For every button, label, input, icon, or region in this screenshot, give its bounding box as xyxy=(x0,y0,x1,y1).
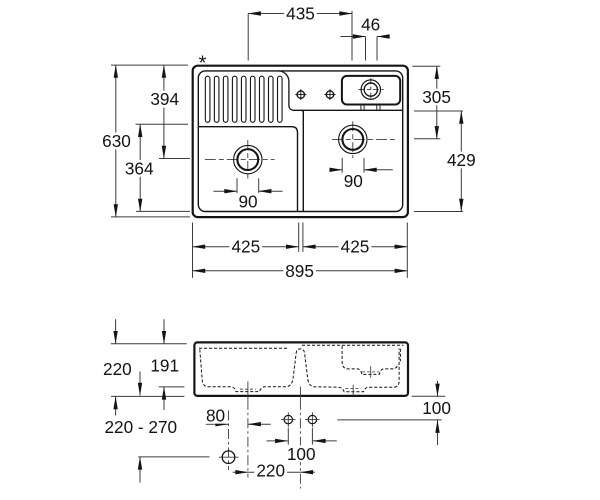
svg-text:630: 630 xyxy=(102,131,131,151)
svg-text:305: 305 xyxy=(422,87,451,107)
svg-text:90: 90 xyxy=(344,171,363,191)
svg-text:220: 220 xyxy=(256,461,285,481)
svg-text:895: 895 xyxy=(285,261,314,281)
svg-text:100: 100 xyxy=(287,444,316,464)
svg-text:46: 46 xyxy=(361,15,380,35)
svg-text:425: 425 xyxy=(231,237,260,257)
svg-text:425: 425 xyxy=(341,237,370,257)
svg-text:80: 80 xyxy=(206,405,225,425)
svg-text:100: 100 xyxy=(422,398,451,418)
svg-text:429: 429 xyxy=(447,150,476,170)
svg-text:394: 394 xyxy=(150,89,179,109)
svg-text:435: 435 xyxy=(286,4,315,24)
svg-text:220: 220 xyxy=(103,359,132,379)
svg-text:90: 90 xyxy=(238,191,257,211)
svg-text:220 - 270: 220 - 270 xyxy=(104,417,177,437)
svg-text:*: * xyxy=(199,53,207,75)
svg-text:364: 364 xyxy=(125,158,154,178)
svg-text:191: 191 xyxy=(150,356,179,376)
